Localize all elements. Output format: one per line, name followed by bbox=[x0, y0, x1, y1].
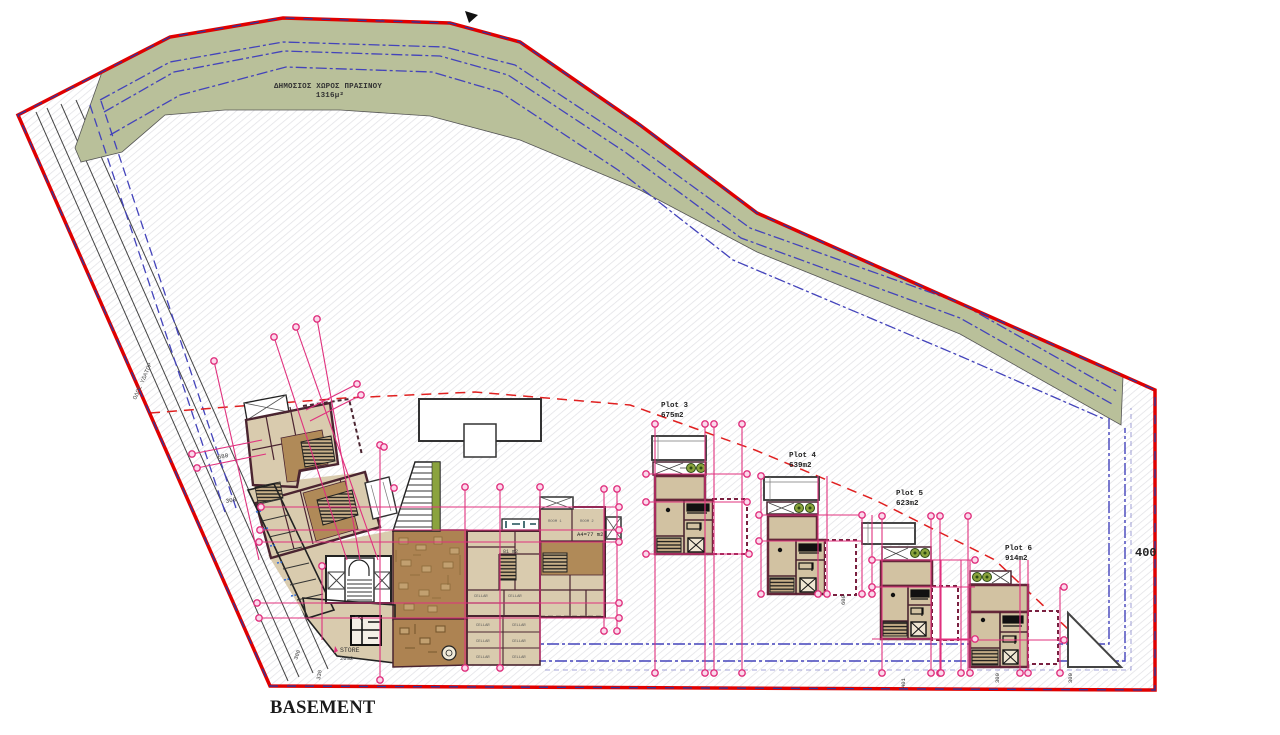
svg-text:CELLAR: CELLAR bbox=[474, 595, 488, 599]
svg-text:ΔΗΜΟΣΙΟΣ ΧΩΡΟΣ ΠΡΑΣΙΝΟΥ: ΔΗΜΟΣΙΟΣ ΧΩΡΟΣ ΠΡΑΣΙΝΟΥ bbox=[274, 83, 382, 91]
svg-text:300: 300 bbox=[994, 673, 1001, 683]
svg-text:639m2: 639m2 bbox=[789, 462, 812, 470]
svg-text:A4=77 m2: A4=77 m2 bbox=[577, 531, 603, 538]
svg-text:600: 600 bbox=[840, 595, 847, 605]
svg-text:675m2: 675m2 bbox=[661, 412, 684, 420]
svg-text:81 m2: 81 m2 bbox=[503, 549, 518, 555]
svg-text:Plot 6: Plot 6 bbox=[1005, 545, 1033, 553]
svg-text:CELLAR: CELLAR bbox=[512, 656, 526, 660]
svg-text:300: 300 bbox=[1067, 673, 1074, 683]
svg-text:Plot 5: Plot 5 bbox=[896, 490, 924, 498]
svg-text:623m2: 623m2 bbox=[896, 500, 919, 508]
svg-text:1316μ²: 1316μ² bbox=[316, 91, 344, 100]
svg-text:400: 400 bbox=[1135, 546, 1157, 560]
svg-text:CELLAR: CELLAR bbox=[476, 656, 490, 660]
svg-text:BASEMENT: BASEMENT bbox=[270, 698, 376, 718]
svg-text:ROOM 1: ROOM 1 bbox=[548, 520, 562, 524]
svg-text:Plot 4: Plot 4 bbox=[789, 452, 817, 460]
svg-text:ROOM 2: ROOM 2 bbox=[580, 520, 594, 524]
svg-text:CELLAR: CELLAR bbox=[476, 640, 490, 644]
svg-text:CELLAR: CELLAR bbox=[512, 640, 526, 644]
svg-text:CELLAR: CELLAR bbox=[512, 624, 526, 628]
svg-text:CELLAR: CELLAR bbox=[476, 624, 490, 628]
svg-text:401: 401 bbox=[900, 677, 907, 688]
svg-text:CELLAR: CELLAR bbox=[508, 595, 522, 599]
svg-text:914m2: 914m2 bbox=[1005, 555, 1028, 563]
svg-text:26m2: 26m2 bbox=[340, 655, 353, 662]
svg-text:Plot 3: Plot 3 bbox=[661, 402, 689, 410]
svg-text:STORE: STORE bbox=[340, 647, 360, 654]
